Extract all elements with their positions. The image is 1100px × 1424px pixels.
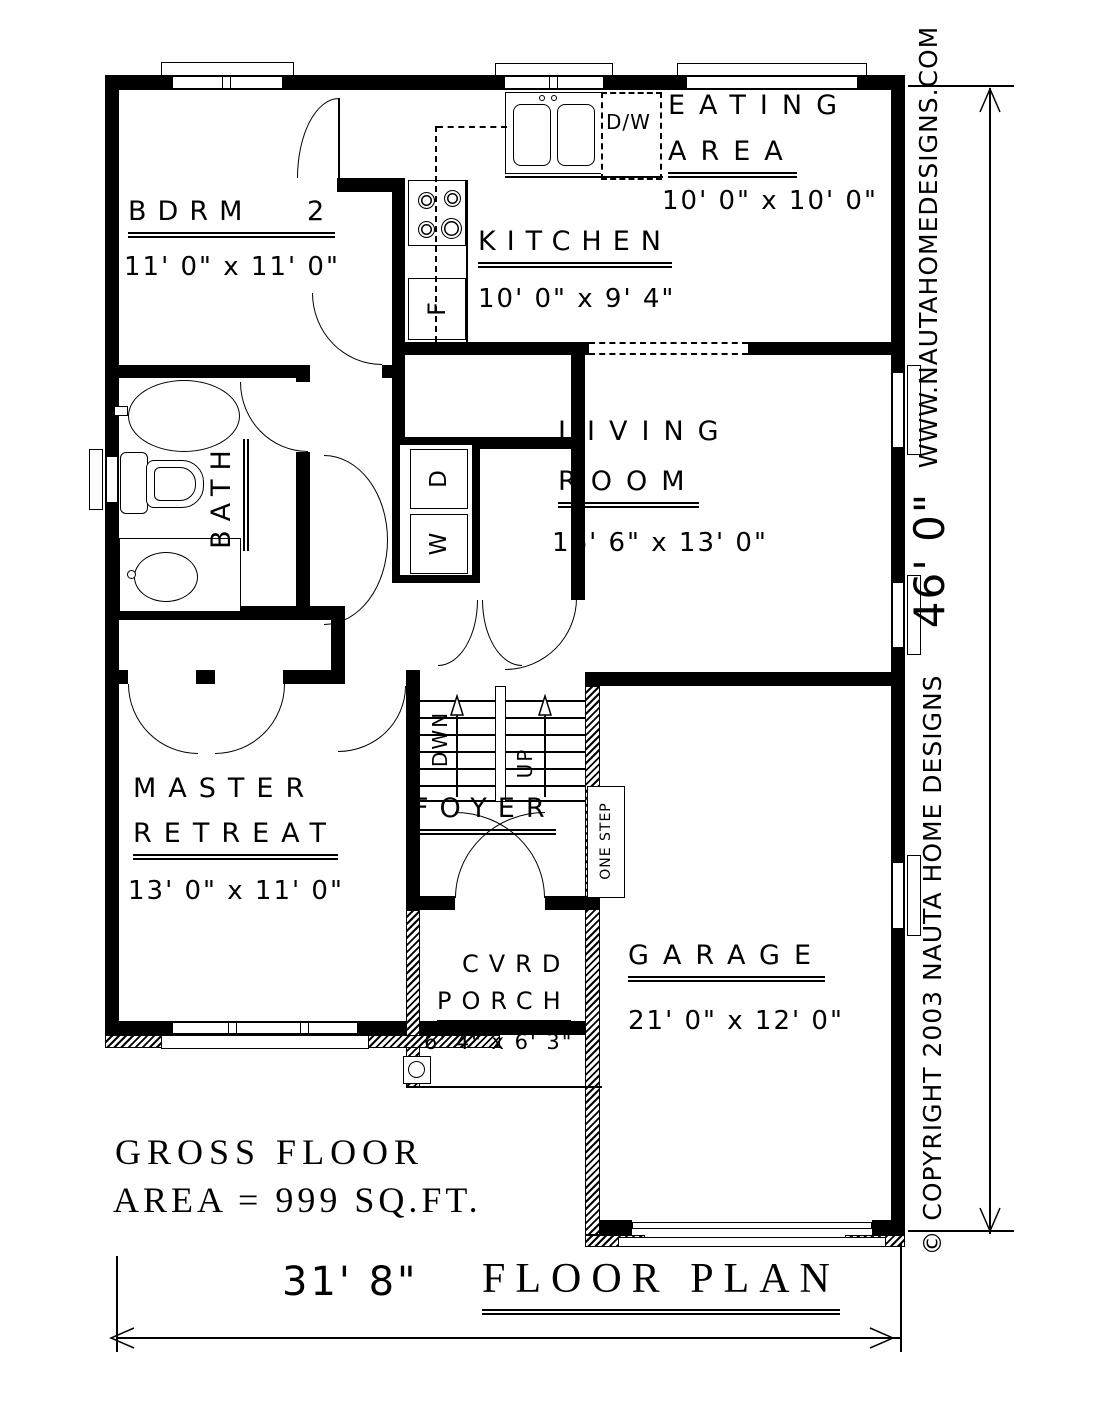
cabinet-dashed-line xyxy=(435,126,437,342)
wall-bdrm2-bottom xyxy=(105,365,310,378)
dishwasher-label: D/W xyxy=(606,112,651,132)
bdrm2-dims: 11' 0" x 11' 0" xyxy=(124,254,340,280)
door-arc-master-closet xyxy=(128,684,198,754)
one-step-label: ONE STEP xyxy=(596,795,616,887)
door-arc-bath xyxy=(240,382,308,452)
counter-edge xyxy=(466,180,468,342)
stairs-up-arrow xyxy=(536,694,554,798)
wall-garage-right xyxy=(891,928,905,1220)
faucet xyxy=(551,95,557,101)
living-label-2: ROOM xyxy=(558,468,699,495)
stairs-up-label: UP xyxy=(514,735,536,791)
dim-arrow-up xyxy=(977,86,1003,114)
eating-label-2: AREA xyxy=(668,138,797,165)
dimension-line-bottom xyxy=(118,1337,902,1339)
window-mullion xyxy=(228,1022,237,1034)
toilet-tank xyxy=(120,452,148,514)
window-sill xyxy=(89,449,103,510)
gross-area-line1: GROSS FLOOR xyxy=(115,1134,424,1170)
wall-top xyxy=(282,75,505,90)
wall-garage-left-hatched xyxy=(585,686,600,1235)
wall-master-bottom xyxy=(105,1021,173,1035)
window-living xyxy=(891,583,905,647)
door-arc-foyer-closet xyxy=(438,600,478,666)
wall-right xyxy=(891,447,905,583)
faucet xyxy=(539,95,545,101)
kitchen-label: KITCHEN xyxy=(478,228,672,255)
toilet-seat xyxy=(154,467,196,501)
master-dims: 13' 0" x 11' 0" xyxy=(128,878,344,904)
garage-door xyxy=(632,1222,872,1229)
floor-plan: D/W F D W BATH DWN UP FOYER ONE STEP xyxy=(0,0,1100,1424)
window-garage xyxy=(891,863,905,928)
wall-left xyxy=(105,75,119,457)
wall-stub xyxy=(382,365,392,378)
window-sill xyxy=(495,63,613,76)
porch-post-circle xyxy=(408,1061,425,1078)
wall-stub xyxy=(337,178,392,192)
wall-hall xyxy=(392,352,405,437)
dryer-label: D xyxy=(422,456,456,502)
dim-arrow-right xyxy=(868,1325,896,1351)
witness-line xyxy=(900,1244,902,1352)
porch-label-2: PORCH xyxy=(437,989,571,1013)
door-arc-kitchen-entry xyxy=(297,98,339,178)
living-label-1: LIVING xyxy=(558,418,733,445)
dim-arrow-left xyxy=(108,1325,136,1351)
wall-left xyxy=(105,502,119,1035)
sink-basin xyxy=(513,104,551,166)
eating-label-1: EATING xyxy=(668,92,851,119)
bath-label: BATH xyxy=(199,439,249,551)
window-sill xyxy=(161,62,294,76)
dimension-line-right xyxy=(989,88,991,1234)
dim-arrow-down xyxy=(977,1206,1003,1234)
stair-stringer xyxy=(495,686,506,802)
window-sill xyxy=(161,1035,369,1049)
window-mullion xyxy=(300,1022,309,1034)
copyright-text: © COPYRIGHT 2003 NAUTA HOME DESIGNS xyxy=(917,700,947,1230)
wall-kitchen-bottom xyxy=(748,342,891,355)
plan-title: FLOOR PLAN xyxy=(482,1258,840,1300)
window-mullion xyxy=(549,76,558,89)
window-master xyxy=(173,1021,357,1035)
garage-door-outer xyxy=(618,1237,886,1247)
stairs-down-label: DWN xyxy=(429,707,451,771)
burner xyxy=(418,192,435,209)
washer-label: W xyxy=(422,521,456,567)
wall-garage-bottom xyxy=(872,1220,905,1235)
bdrm2-label: BDRM 2 xyxy=(128,198,335,225)
door-arc-hall-closet xyxy=(324,540,388,625)
master-label-1: MASTER xyxy=(133,775,316,802)
wall-foyer-bottom xyxy=(406,896,455,910)
dishwasher-box xyxy=(601,92,662,180)
wall-master-closet xyxy=(105,670,128,684)
cabinet-dashed-line xyxy=(437,126,507,128)
wall-bdrm2-kitchen xyxy=(392,178,405,352)
sink-basin xyxy=(557,104,595,166)
vanity-sink xyxy=(134,552,198,602)
wall-right xyxy=(891,75,905,373)
porch-dims: 6' 4" x 6' 3" xyxy=(424,1032,573,1053)
garage-label: GARAGE xyxy=(628,942,825,969)
wall-closet-side xyxy=(331,620,345,684)
wall-opening-dashed xyxy=(589,342,748,355)
counter-edge xyxy=(505,176,663,178)
fridge-label: F xyxy=(420,286,454,332)
burner xyxy=(441,218,462,239)
master-label-2: RETREAT xyxy=(133,820,338,847)
foyer-label: FOYER xyxy=(413,795,556,822)
window-bath xyxy=(105,457,119,502)
tub-faucet xyxy=(114,406,128,416)
vanity-faucet xyxy=(127,570,136,579)
kitchen-dims: 10' 0" x 9' 4" xyxy=(478,286,675,312)
wall-top xyxy=(603,75,687,90)
door-arc-hall-closet xyxy=(324,455,388,540)
burner xyxy=(418,221,435,238)
door-leaf xyxy=(338,98,340,178)
door-arc-master-closet xyxy=(215,684,285,754)
eating-dims: 10' 0" x 10' 0" xyxy=(662,188,878,214)
wall-foyer-bottom xyxy=(545,896,600,910)
wall-master-closet xyxy=(196,670,215,684)
porch-edge xyxy=(406,1086,602,1088)
window xyxy=(687,75,857,90)
porch-label-1: CVRD xyxy=(462,952,570,976)
wall-kitchen-bottom xyxy=(405,342,589,355)
wall-garage-right xyxy=(891,686,905,863)
website-text: WWW.NAUTAHOMEDESIGNS.COM xyxy=(913,77,943,417)
window-living xyxy=(891,373,905,447)
living-dims: 16' 6" x 13' 0" xyxy=(552,530,768,556)
wall-garage-top xyxy=(585,672,905,686)
wall-bath-right xyxy=(296,452,310,620)
window-sill xyxy=(677,63,867,76)
width-dim-label: 31' 8" xyxy=(282,1262,418,1302)
burner xyxy=(444,190,461,207)
window-mullion xyxy=(222,76,231,89)
garage-dims: 21' 0" x 12' 0" xyxy=(628,1008,844,1034)
height-dim-label: 46' 0" xyxy=(905,485,955,635)
door-arc-bdrm2 xyxy=(312,293,382,365)
door-arc-foyer-closet xyxy=(482,600,522,666)
door-arc-master-entry xyxy=(338,686,406,752)
gross-area-line2: AREA = 999 SQ.FT. xyxy=(113,1182,482,1218)
wall-bath-right xyxy=(296,365,310,382)
